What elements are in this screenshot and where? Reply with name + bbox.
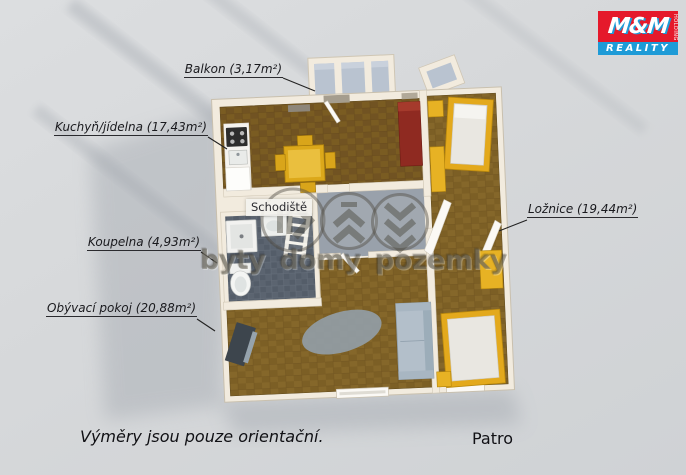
room-label-loznice: Ložnice (19,44m²) (527, 202, 638, 218)
room-label-kuchyn: Kuchyň/jídelna (17,43m²) (54, 120, 208, 136)
room-label-koupelna: Koupelna (4,93m²) (87, 235, 201, 251)
brand-logo-reality: REALITY (606, 44, 670, 54)
room-label-obyvaci: Obývací pokoj (20,88m²) (46, 301, 197, 317)
brand-logo-mm: M&M (607, 16, 669, 38)
brand-logo-top: M&M HOLDING (598, 11, 678, 42)
caption-floor: Patro (472, 429, 513, 448)
room-label-balkon: Balkon (3,17m²) (184, 62, 283, 78)
caption-disclaimer: Výměry jsou pouze orientační. (80, 427, 324, 446)
watermark-text: byty domy pozemky (200, 247, 507, 274)
floorplan-scene: Balkon (3,17m²) Kuchyň/jídelna (17,43m²)… (0, 0, 686, 475)
room-label-schodiste: Schodiště (246, 199, 312, 216)
brand-logo-holding: HOLDING (672, 14, 677, 41)
sofa (396, 302, 434, 379)
brand-logo: M&M HOLDING REALITY (598, 11, 678, 55)
brand-logo-bottom: REALITY (598, 42, 678, 55)
